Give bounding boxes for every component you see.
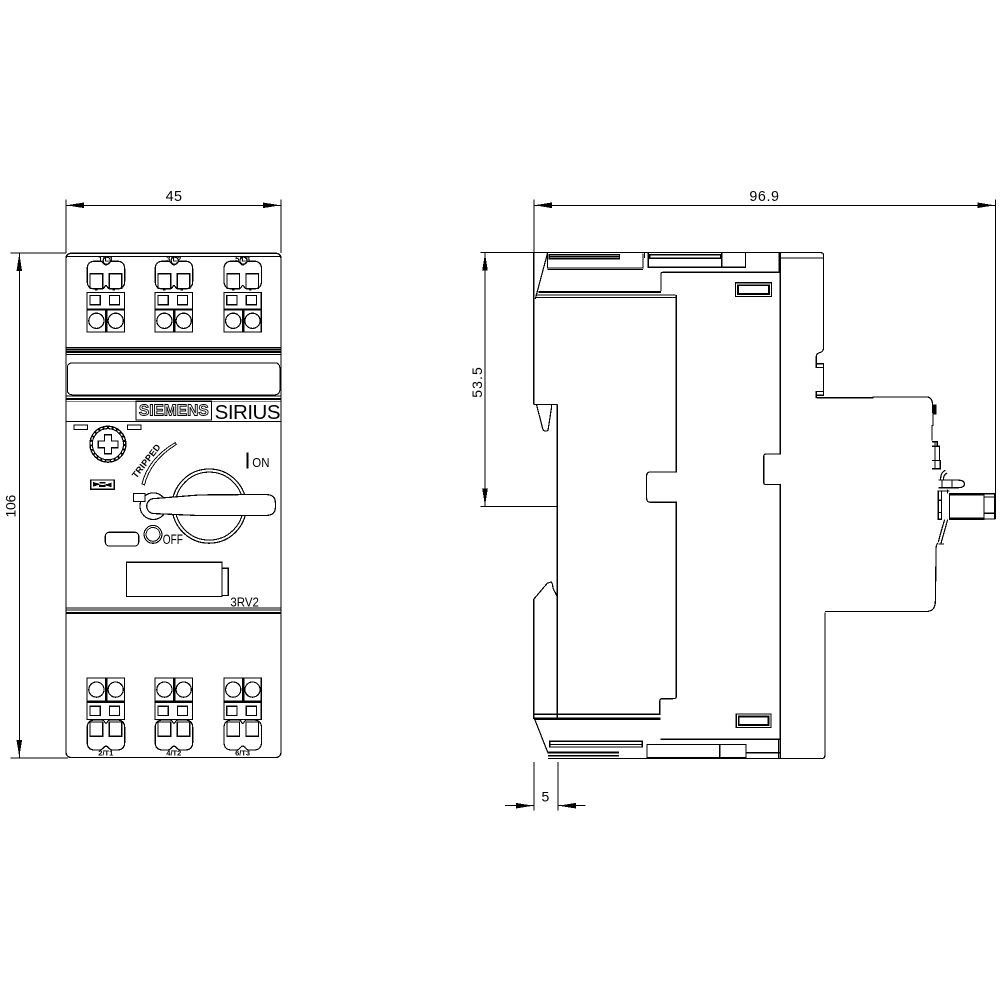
svg-text:3RV2: 3RV2: [230, 595, 259, 610]
svg-text:6/T3: 6/T3: [235, 749, 250, 758]
svg-text:53.5: 53.5: [469, 366, 485, 398]
svg-text:106: 106: [3, 495, 19, 518]
svg-text:1/L1: 1/L1: [98, 255, 113, 264]
svg-text:5/L3: 5/L3: [235, 255, 250, 264]
svg-text:OFF: OFF: [163, 531, 183, 547]
svg-text:SIRIUS: SIRIUS: [215, 401, 280, 424]
svg-text:2/T1: 2/T1: [98, 749, 113, 758]
svg-text:ON: ON: [252, 456, 269, 471]
svg-text:4/T2: 4/T2: [166, 749, 181, 758]
svg-text:96.9: 96.9: [749, 189, 779, 205]
svg-text:SIEMENS: SIEMENS: [139, 402, 209, 419]
svg-text:3/L2: 3/L2: [166, 255, 181, 264]
svg-text:5: 5: [542, 789, 550, 805]
svg-text:45: 45: [166, 189, 183, 205]
